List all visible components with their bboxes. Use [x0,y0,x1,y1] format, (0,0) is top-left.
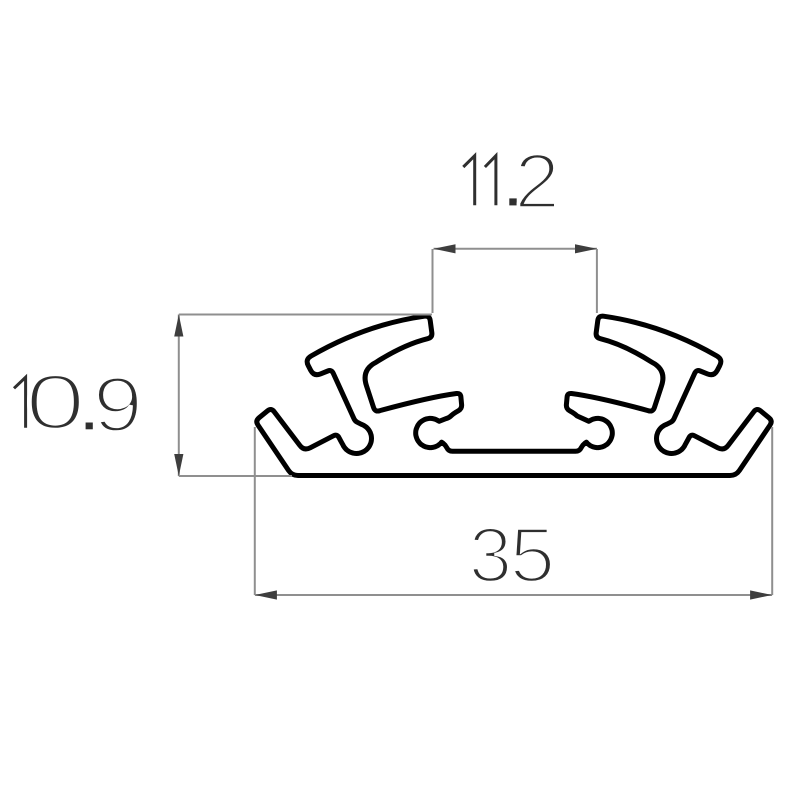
svg-text:9: 9 [93,361,143,448]
svg-text:3: 3 [469,511,512,599]
svg-text:2: 2 [514,138,560,225]
svg-text:5: 5 [510,511,556,598]
svg-text:0: 0 [25,359,85,446]
